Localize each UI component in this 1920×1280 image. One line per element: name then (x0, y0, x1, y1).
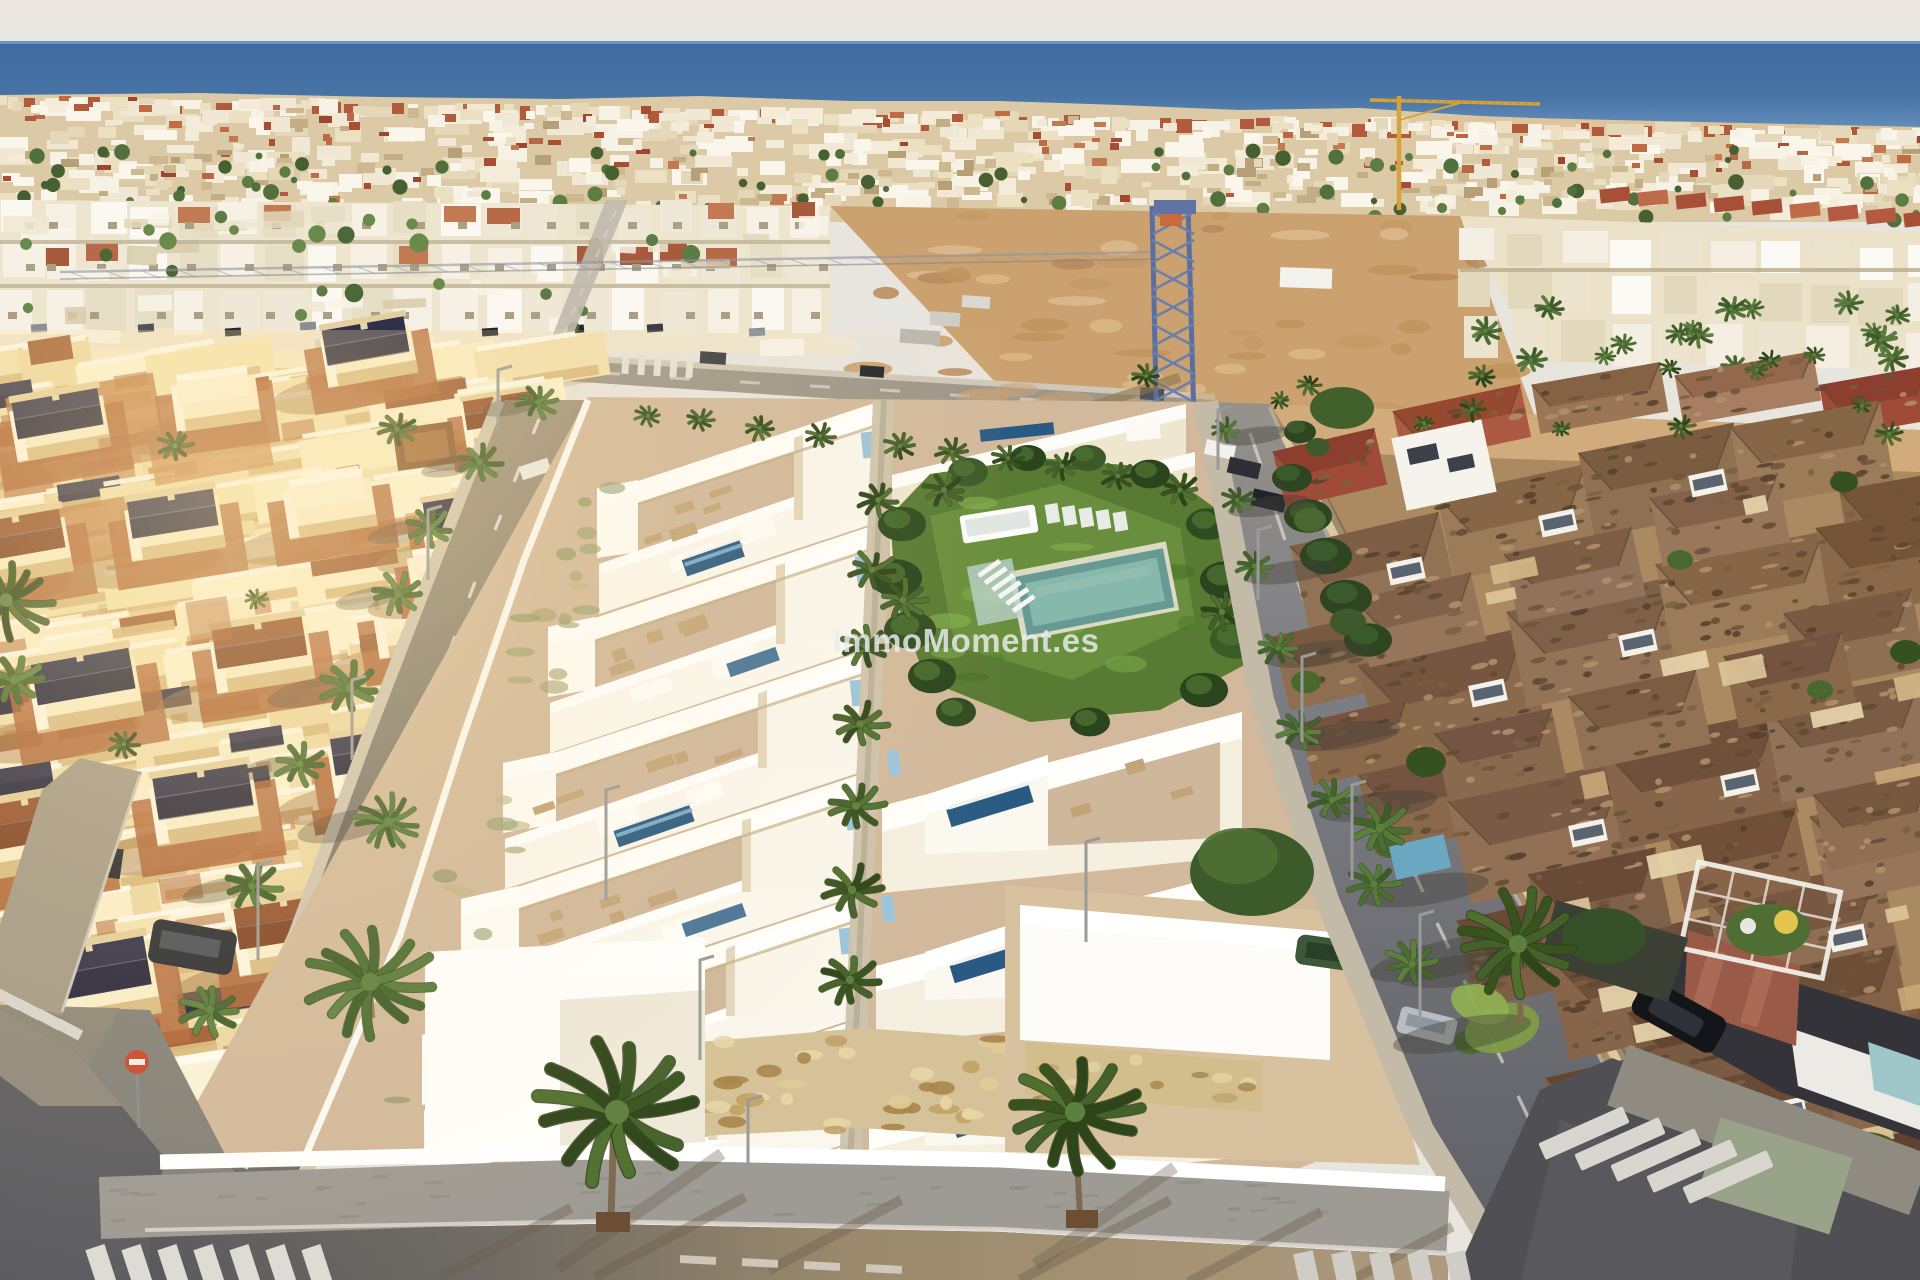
svg-text:ImmoMoment.es: ImmoMoment.es (833, 622, 1100, 659)
